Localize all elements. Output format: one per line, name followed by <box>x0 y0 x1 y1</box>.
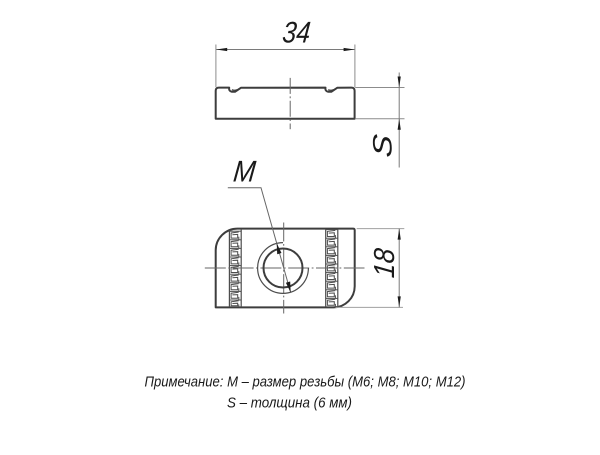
svg-text:Примечание: М – размер резьбы: Примечание: М – размер резьбы (М6; М8; М… <box>145 375 466 391</box>
svg-text:34: 34 <box>281 15 312 49</box>
svg-text:M: M <box>232 155 258 189</box>
svg-text:18: 18 <box>368 246 400 279</box>
svg-text:S – толщина (6 мм): S – толщина (6 мм) <box>227 396 352 412</box>
svg-text:S: S <box>368 133 397 159</box>
